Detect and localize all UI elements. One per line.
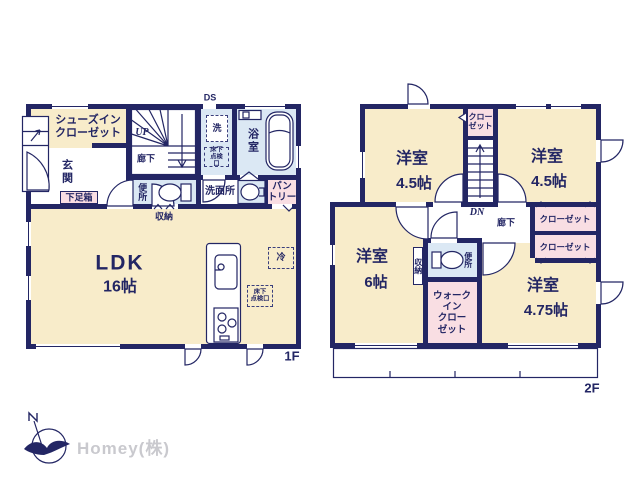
wall-segment xyxy=(535,231,596,235)
door-opening xyxy=(247,344,263,349)
label-floor-1f: 1F xyxy=(284,348,299,363)
window-opening xyxy=(408,104,430,109)
label-toilet-2f: 便所 xyxy=(463,252,472,268)
stairs-2f-treads xyxy=(468,148,493,196)
window xyxy=(551,104,581,109)
underfloor-hatch-label: 床下 点検口 xyxy=(251,289,270,303)
wall-segment xyxy=(296,104,301,349)
label-room-w-size: 6帖 xyxy=(364,274,387,292)
stairs-2f-arrow xyxy=(476,145,484,198)
door-arc-ldk-south-2 xyxy=(247,349,263,365)
door-opening xyxy=(203,175,225,180)
wall-segment xyxy=(92,143,126,148)
duct-space-gap xyxy=(203,104,216,109)
compass-north-mark xyxy=(29,413,37,421)
window-arc-top xyxy=(408,84,428,104)
label-storage-1f: 収納 xyxy=(155,212,173,223)
window xyxy=(245,104,285,109)
underfloor-hatch-label: 床下 点検口 xyxy=(208,147,226,168)
room-ldk xyxy=(31,209,296,344)
window xyxy=(26,276,31,300)
wall-segment xyxy=(423,238,428,348)
wall-segment xyxy=(196,109,201,204)
label-room-se-size: 4.75帖 xyxy=(524,302,568,320)
label-room-nw: 洋室 xyxy=(396,151,428,170)
label-room-ne: 洋室 xyxy=(531,149,563,168)
label-pantry: パン トリー xyxy=(268,181,297,203)
balcony xyxy=(334,349,598,378)
washbasin-unit xyxy=(238,181,265,204)
window xyxy=(508,343,578,348)
label-bathroom: 浴室 xyxy=(246,128,259,154)
label-closet-e1: クローゼット xyxy=(539,214,590,224)
floor-plan: 洗 床下 点検口 冷 床下 点検口 シューズイン クローゼット 玄関 下足箱 廊… xyxy=(0,0,640,480)
door-opening xyxy=(396,202,426,207)
wall-segment xyxy=(477,238,482,348)
window xyxy=(355,343,417,348)
washer-label: 洗 xyxy=(212,124,221,134)
label-shoes-in-closet: シューズイン クローゼット xyxy=(55,114,121,140)
label-stairs-up: UP xyxy=(135,127,148,139)
window xyxy=(330,245,335,265)
label-hallway-2f: 廊下 xyxy=(497,218,515,229)
window-opening xyxy=(596,282,601,304)
door-opening xyxy=(498,202,526,207)
wall-segment xyxy=(535,258,596,263)
label-storage-2f: 収納 xyxy=(413,258,422,274)
label-closet-e2: クローゼット xyxy=(539,242,590,252)
window xyxy=(52,104,88,109)
label-room-ne-size: 4.5帖 xyxy=(531,173,567,191)
label-ldk-size: 16帖 xyxy=(103,279,137,298)
door-opening xyxy=(185,344,201,349)
wall-segment xyxy=(330,202,335,348)
washer-space: 洗 xyxy=(206,115,228,142)
underfloor-hatch-1: 床下 点検口 xyxy=(204,147,229,167)
door-opening xyxy=(272,204,292,209)
compass-circle xyxy=(32,429,66,463)
compass-needle xyxy=(34,421,44,452)
window-opening xyxy=(596,140,601,162)
underfloor-hatch-2: 床下 点検口 xyxy=(247,285,273,307)
door-opening xyxy=(483,238,515,243)
stairs-1f-arrow xyxy=(178,114,186,167)
label-floor-2f: 2F xyxy=(584,380,599,395)
door-opening xyxy=(431,238,457,243)
window-arc-right-2 xyxy=(601,282,623,304)
door-arc-ldk-south-1 xyxy=(185,349,201,365)
wall-segment xyxy=(428,277,477,282)
wall-segment xyxy=(493,109,498,207)
label-closet-top: クロー ゼット xyxy=(469,113,493,132)
wall-segment xyxy=(468,136,493,140)
label-ldk: LDK xyxy=(95,252,144,277)
balcony-ticks xyxy=(390,371,520,378)
label-toilet-1f: 便所 xyxy=(137,183,148,201)
door-opening xyxy=(240,175,258,180)
stairs-1f xyxy=(132,110,196,175)
label-walk-in-closet: ウォーク イン クロー ゼット xyxy=(433,291,471,336)
window-arc-right-1 xyxy=(601,140,623,162)
label-washroom: 洗面所 xyxy=(205,186,235,198)
door-opening xyxy=(433,202,461,207)
door-arc-toilet-2f xyxy=(431,212,457,238)
label-room-w: 洋室 xyxy=(356,249,388,268)
label-room-nw-size: 4.5帖 xyxy=(396,175,432,193)
label-stairs-down: DN xyxy=(470,207,484,219)
label-shoe-box: 下足箱 xyxy=(65,193,92,204)
wall-segment xyxy=(232,109,237,175)
fridge-label: 冷 xyxy=(276,253,285,263)
window xyxy=(36,344,120,349)
label-entrance: 玄関 xyxy=(60,159,73,185)
label-room-se: 洋室 xyxy=(527,278,559,297)
window xyxy=(360,152,365,178)
fridge-space: 冷 xyxy=(268,247,294,269)
door-opening xyxy=(152,204,178,209)
window xyxy=(296,146,301,168)
wall-segment xyxy=(463,109,468,207)
door-opening xyxy=(107,204,133,209)
compass-bird-icon xyxy=(24,441,70,455)
window xyxy=(516,104,546,109)
wall-segment xyxy=(330,202,365,207)
washbasin-bowl xyxy=(241,184,259,200)
label-hallway-1f: 廊下 xyxy=(137,154,155,165)
label-duct-space: DS xyxy=(204,93,217,104)
company-logo-text: Homey(株) xyxy=(77,434,170,459)
window xyxy=(26,222,31,246)
wall-segment xyxy=(126,109,131,204)
